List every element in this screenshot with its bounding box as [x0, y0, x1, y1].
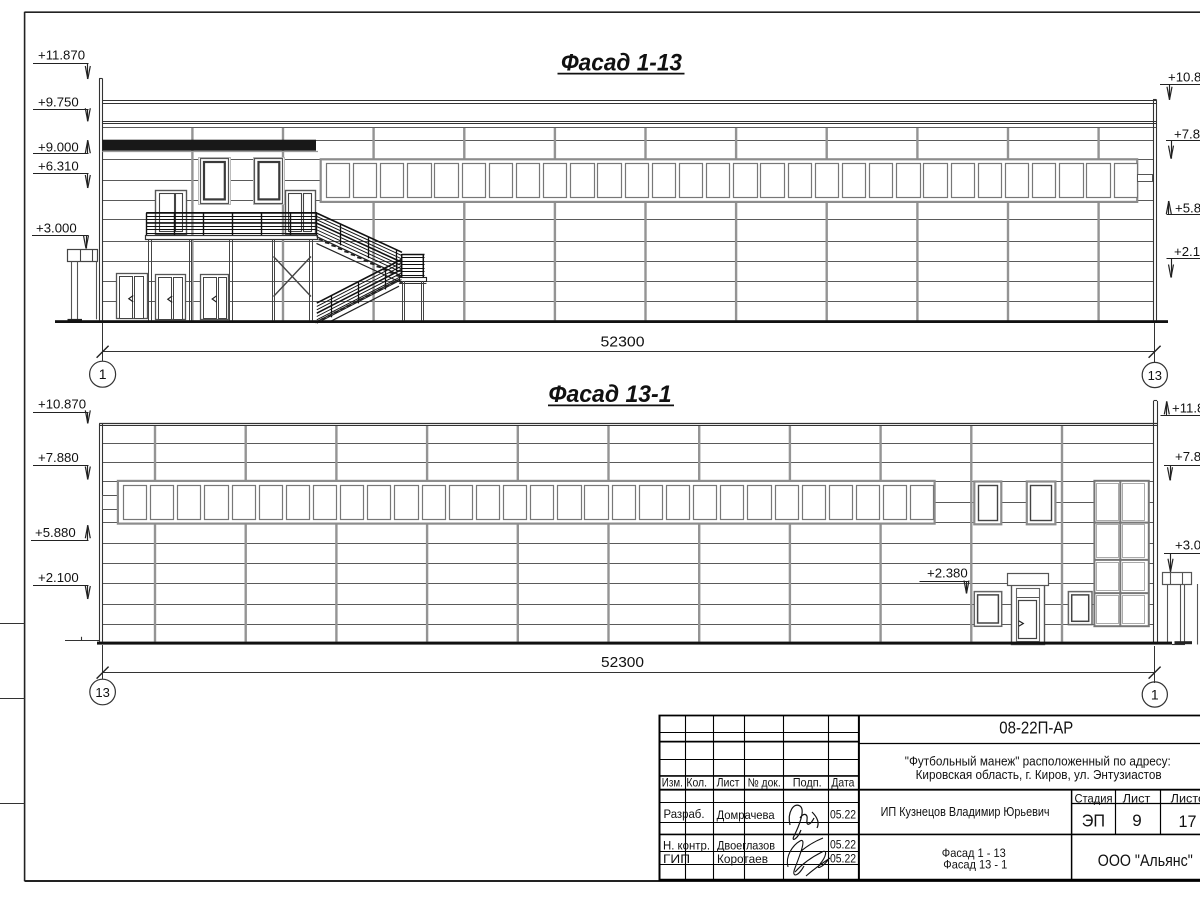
svg-text:+3.000: +3.000 [36, 221, 77, 236]
svg-text:Листов: Листов [1171, 791, 1200, 805]
svg-text:13: 13 [95, 685, 109, 700]
svg-text:1: 1 [1151, 687, 1159, 703]
svg-text:Коротаев: Коротаев [717, 852, 768, 866]
svg-text:Разраб.: Разраб. [664, 807, 705, 821]
svg-text:Кировская область, г. Киров, у: Кировская область, г. Киров, ул. Энтузиа… [916, 768, 1162, 782]
svg-text:+3.000: +3.000 [1175, 538, 1200, 553]
svg-text:+10.870: +10.870 [1168, 70, 1200, 85]
svg-text:+11.870: +11.870 [38, 48, 85, 63]
svg-text:Лист: Лист [1123, 791, 1151, 805]
svg-text:"Футбольный манеж" расположенн: "Футбольный манеж" расположенный по адре… [905, 755, 1171, 769]
svg-text:Изм.: Изм. [662, 776, 683, 790]
svg-text:1: 1 [99, 366, 107, 382]
svg-text:Фасад 13-1: Фасад 13-1 [549, 381, 672, 408]
svg-text:Фасад 1-13: Фасад 1-13 [561, 50, 682, 77]
svg-text:Двоеглазов: Двоеглазов [717, 839, 775, 853]
svg-text:+7.880: +7.880 [38, 450, 79, 465]
svg-text:08-22П-АР: 08-22П-АР [999, 718, 1073, 738]
svg-text:Стадия: Стадия [1075, 791, 1113, 805]
svg-text:+2.100: +2.100 [38, 570, 79, 585]
svg-text:+2.100: +2.100 [1174, 244, 1200, 259]
svg-text:+7.880: +7.880 [1175, 449, 1200, 464]
svg-text:Подп.: Подп. [793, 776, 822, 790]
svg-text:17: 17 [1179, 812, 1197, 831]
svg-text:ИП Кузнецов Владимир Юрьевич: ИП Кузнецов Владимир Юрьевич [881, 805, 1050, 819]
svg-text:+10.870: +10.870 [38, 397, 86, 412]
svg-text:ООО "Альянс": ООО "Альянс" [1098, 852, 1193, 870]
svg-text:05.22: 05.22 [830, 851, 856, 865]
svg-text:Домрачева: Домрачева [717, 808, 775, 822]
svg-text:Фасад 13 - 1: Фасад 13 - 1 [943, 858, 1007, 872]
svg-text:Лист: Лист [717, 776, 740, 790]
svg-text:+9.750: +9.750 [38, 95, 79, 110]
svg-text:+2.380: +2.380 [927, 566, 968, 581]
svg-text:52300: 52300 [601, 335, 645, 351]
svg-text:Н. контр.: Н. контр. [663, 839, 710, 853]
svg-text:+6.310: +6.310 [38, 158, 79, 173]
svg-text:+7.880: +7.880 [1174, 126, 1200, 141]
svg-text:+5.880: +5.880 [35, 525, 76, 540]
svg-text:ЭП: ЭП [1082, 811, 1105, 831]
svg-text:+5.840: +5.840 [1175, 200, 1200, 215]
svg-text:Кол.: Кол. [686, 776, 707, 790]
svg-text:ГИП: ГИП [663, 852, 690, 866]
svg-text:05.22: 05.22 [830, 838, 856, 852]
svg-text:52300: 52300 [601, 655, 644, 671]
svg-text:Дата: Дата [831, 776, 854, 790]
svg-text:№ док.: № док. [748, 776, 781, 790]
svg-text:+9.000: +9.000 [38, 140, 79, 155]
svg-text:9: 9 [1132, 811, 1141, 830]
svg-text:+11.870: +11.870 [1172, 401, 1200, 416]
svg-text:13: 13 [1148, 368, 1162, 383]
svg-text:05.22: 05.22 [830, 808, 856, 822]
